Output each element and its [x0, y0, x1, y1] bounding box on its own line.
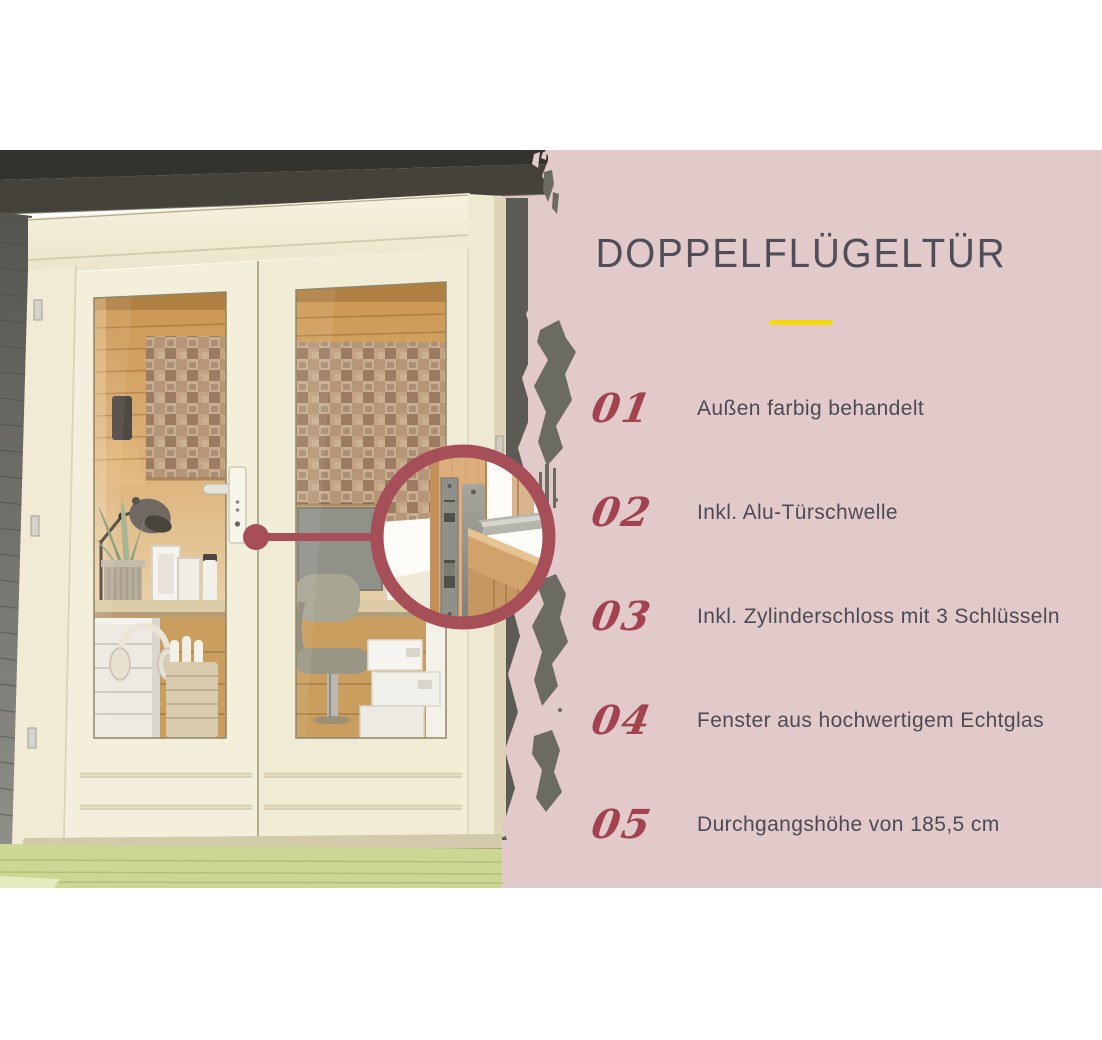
feature-text: Inkl. Alu-Türschwelle — [697, 501, 898, 525]
lock-faceplate — [441, 478, 458, 622]
feature-row: 01 Außen farbig behandelt — [592, 385, 1092, 433]
yellow-divider — [769, 320, 833, 325]
coffee-tumbler — [203, 554, 217, 604]
magnifier-connector-line — [252, 533, 378, 541]
feature-number: 02 — [588, 493, 700, 533]
feature-text: Inkl. Zylinderschloss mit 3 Schlüsseln — [697, 605, 1060, 629]
deck-floor — [0, 844, 502, 888]
feature-number: 04 — [588, 701, 700, 741]
left-glass-interior — [92, 292, 226, 738]
feature-list: 01 Außen farbig behandelt 02 Inkl. Alu-T… — [592, 385, 1092, 905]
feature-row: 02 Inkl. Alu-Türschwelle — [592, 489, 1092, 537]
feature-text: Fenster aus hochwertigem Echtglas — [697, 709, 1044, 733]
product-infographic: DOPPELFLÜGELTÜR 01 Außen farbig behandel… — [0, 0, 1102, 1040]
feature-row: 05 Durchgangshöhe von 185,5 cm — [592, 801, 1092, 849]
wood-mosaic-panel — [146, 336, 226, 478]
shed-door-photo — [0, 150, 600, 888]
feature-text: Außen farbig behandelt — [697, 397, 924, 421]
magnifier-anchor-dot — [243, 524, 269, 550]
feature-row: 03 Inkl. Zylinderschloss mit 3 Schlüssel… — [592, 593, 1092, 641]
feature-number: 03 — [588, 597, 700, 637]
feature-text: Durchgangshöhe von 185,5 cm — [697, 813, 1000, 837]
feature-number: 05 — [588, 805, 700, 845]
page-title: DOPPELFLÜGELTÜR — [518, 230, 1084, 277]
feature-row: 04 Fenster aus hochwertigem Echtglas — [592, 697, 1092, 745]
feature-number: 01 — [588, 389, 700, 429]
desk-top — [94, 600, 226, 612]
